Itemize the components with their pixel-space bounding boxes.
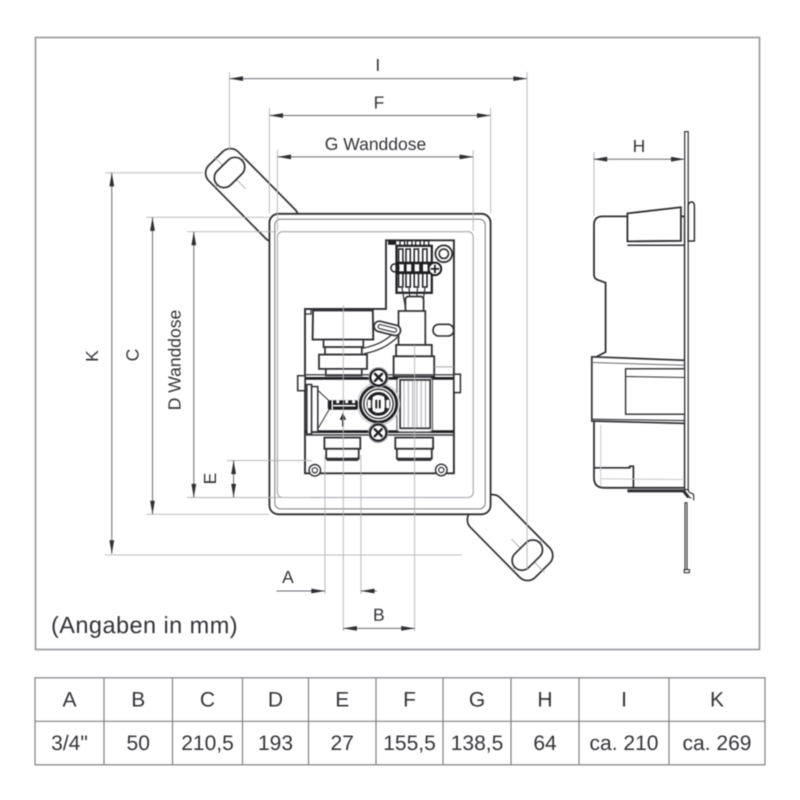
svg-text:B: B [373,605,385,625]
svg-text:ca. 269: ca. 269 [683,732,752,755]
svg-text:K: K [82,350,102,362]
svg-text:I: I [621,688,627,711]
svg-text:H: H [537,688,552,711]
svg-text:E: E [335,688,349,711]
svg-text:ca. 210: ca. 210 [590,732,659,755]
svg-text:50: 50 [127,732,150,755]
svg-text:155,5: 155,5 [383,732,436,755]
svg-text:G Wanddose: G Wanddose [325,134,427,154]
svg-text:138,5: 138,5 [451,732,504,755]
svg-text:I: I [375,55,380,75]
svg-text:G: G [469,688,485,711]
svg-text:K: K [710,688,724,711]
svg-text:H: H [633,136,646,156]
svg-text:3/4": 3/4" [51,732,88,755]
svg-text:210,5: 210,5 [181,732,234,755]
svg-text:D: D [268,688,283,711]
svg-text:C: C [200,688,215,711]
svg-text:F: F [374,92,385,112]
svg-text:A: A [62,688,76,711]
svg-text:E: E [200,473,220,485]
svg-text:(Angaben in mm): (Angaben in mm) [51,612,238,638]
svg-text:27: 27 [331,732,354,755]
svg-text:193: 193 [258,732,293,755]
svg-text:64: 64 [533,732,557,755]
svg-text:D Wanddose: D Wanddose [165,310,185,411]
svg-text:C: C [123,349,143,362]
svg-text:B: B [131,688,145,711]
svg-text:A: A [282,567,294,587]
svg-text:F: F [403,688,416,711]
